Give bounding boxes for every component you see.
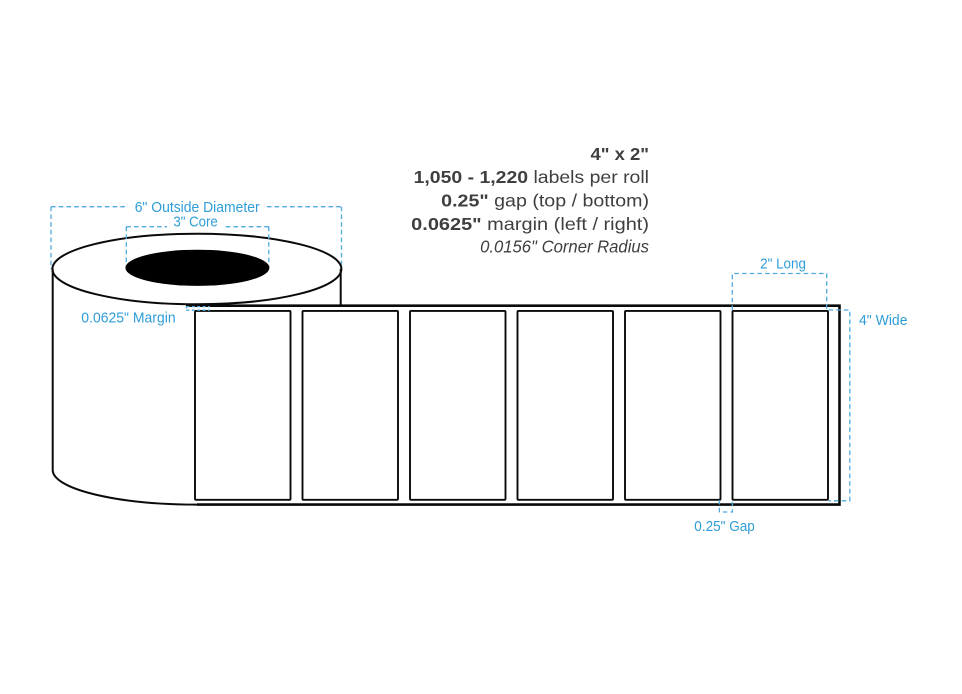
- svg-text:1,050 - 1,220 labels per roll: 1,050 - 1,220 labels per roll: [414, 167, 649, 187]
- svg-text:2" Long: 2" Long: [760, 255, 806, 272]
- svg-text:0.25" Gap: 0.25" Gap: [694, 518, 755, 535]
- svg-text:0.25" gap (top / bottom): 0.25" gap (top / bottom): [441, 191, 649, 211]
- svg-text:0.0156" Corner Radius: 0.0156" Corner Radius: [480, 236, 649, 256]
- svg-text:0.0625" Margin: 0.0625" Margin: [81, 309, 175, 326]
- svg-text:4" Wide: 4" Wide: [859, 312, 908, 329]
- svg-text:4" x 2": 4" x 2": [591, 144, 650, 164]
- svg-text:3" Core: 3" Core: [173, 214, 217, 231]
- svg-text:0.0625" margin (left / right): 0.0625" margin (left / right): [411, 214, 649, 234]
